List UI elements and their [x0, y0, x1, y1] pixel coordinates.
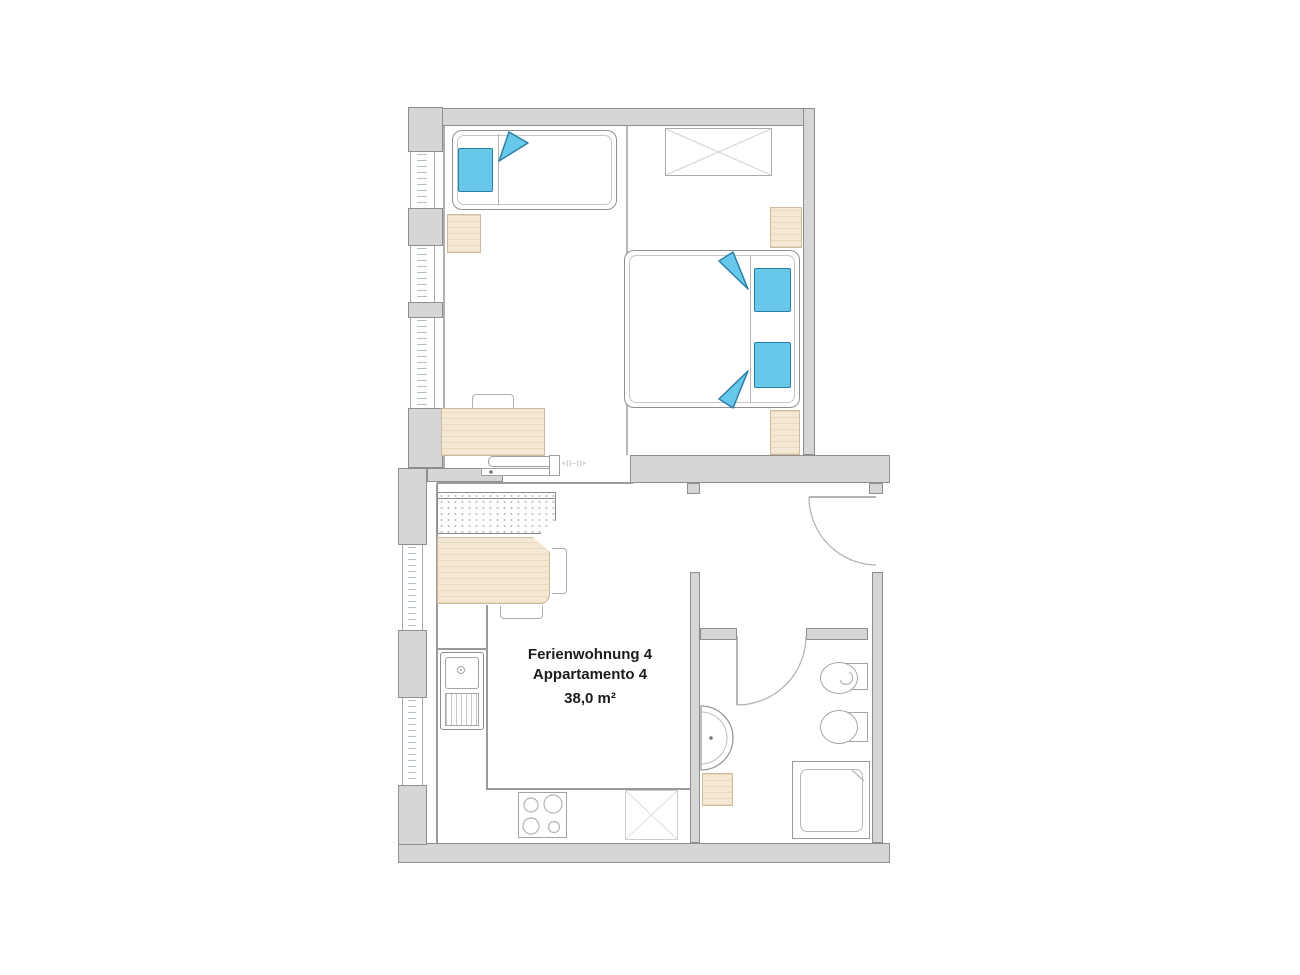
desk: [441, 408, 545, 456]
double-bed-divider: [750, 255, 751, 403]
chair: [500, 606, 543, 619]
wall-bottom: [398, 843, 890, 863]
wall-left-pillar: [408, 302, 443, 318]
window: [402, 545, 423, 630]
wall-right-bedroom: [803, 108, 815, 455]
wall-left-pillar: [408, 408, 443, 468]
sofa: [437, 492, 556, 534]
wall-left-pillar: [398, 468, 427, 545]
single-bed-divider: [498, 134, 499, 206]
stove: [518, 792, 567, 838]
washbasin: [701, 706, 733, 770]
bathroom-door: [737, 636, 806, 705]
wall-left-pillar: [408, 208, 443, 246]
apartment-title-de: Ferienwohnung 4: [528, 646, 652, 663]
wall-top: [420, 108, 815, 126]
pillow: [754, 342, 791, 388]
shower-tray: [800, 769, 863, 832]
dimension-note: «()–()»: [562, 461, 587, 467]
bidet-bowl: [820, 710, 858, 744]
apartment-title-it: Appartamento 4: [533, 666, 647, 683]
desk-chair: [472, 394, 514, 408]
wall-left-pillar: [398, 785, 427, 845]
apartment-area: 38,0 m²: [470, 689, 710, 709]
bath-mat: [702, 773, 733, 806]
sideboard-shelf: [481, 468, 551, 476]
nightstand: [770, 207, 802, 248]
door-jamb-left: [687, 483, 700, 494]
appliance: [625, 790, 678, 840]
wall-left-pillar: [398, 630, 427, 698]
living-top-line: [437, 482, 633, 484]
wall-left-pillar: [408, 107, 443, 152]
apartment-label: Ferienwohnung 4 Appartamento 4 38,0 m²: [470, 645, 710, 709]
door-jamb-right: [869, 483, 883, 494]
dining-table: [437, 537, 550, 604]
wall-bath-stub-right: [806, 628, 868, 640]
wall-right-lower: [872, 572, 883, 843]
chair: [552, 548, 567, 594]
window: [410, 318, 435, 408]
window: [402, 698, 423, 785]
nightstand: [770, 410, 800, 455]
pillow: [754, 268, 791, 312]
floor-plan-page: «()–()»: [0, 0, 1300, 975]
pillow: [458, 148, 493, 192]
wardrobe: [665, 128, 772, 176]
toilet-bowl: [820, 662, 858, 694]
wall-corridor: [630, 455, 890, 483]
wall-bath-stub-left: [700, 628, 737, 640]
sideboard-end: [549, 455, 560, 476]
window: [410, 246, 435, 302]
nightstand: [447, 214, 481, 253]
sideboard: [488, 456, 553, 467]
entry-door: [809, 497, 876, 565]
window: [410, 152, 435, 208]
